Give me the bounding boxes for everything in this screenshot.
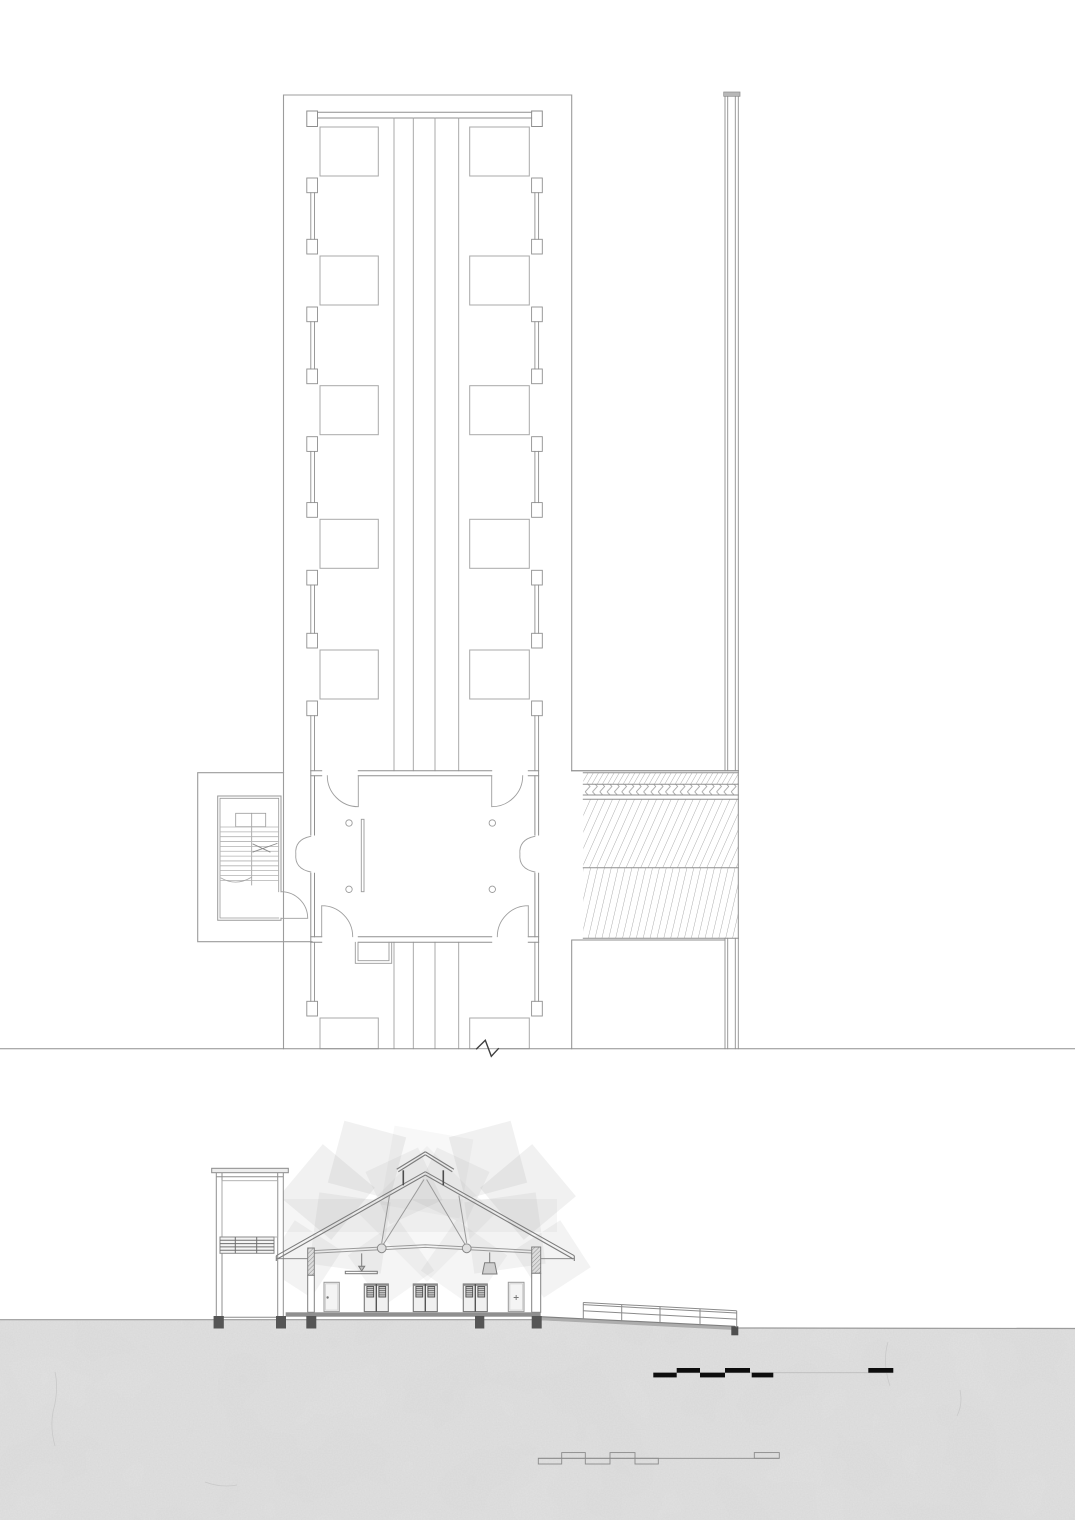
footing-pad [214, 1316, 224, 1329]
scale-bar-segment [752, 1373, 774, 1378]
door-louver [428, 1287, 435, 1298]
footing-pad [306, 1316, 316, 1329]
stall-left [320, 386, 378, 435]
terrain [0, 1310, 1075, 1520]
wall-pilaster-left [307, 369, 318, 384]
architectural-sheet [0, 0, 1075, 1520]
wall-pilaster-right [532, 570, 543, 585]
roof-hatch-band [583, 799, 738, 867]
below-hatch-rect [572, 940, 725, 1049]
stair-cut-arc [221, 878, 251, 883]
left-wall-cut [308, 1248, 315, 1275]
end-hall [296, 771, 539, 964]
footing-pad [532, 1316, 542, 1329]
stall-right [470, 519, 530, 568]
hall-niche [355, 942, 391, 963]
stall-right [470, 256, 530, 305]
wall-pilaster-left [307, 239, 318, 254]
wall-pilaster-left [307, 178, 318, 193]
scale-bar-segment [868, 1368, 893, 1373]
double-door [463, 1284, 487, 1312]
stall-right [470, 386, 530, 435]
door-louver [416, 1287, 423, 1298]
stall-right [470, 1018, 530, 1049]
wall-pilaster-right [532, 701, 543, 716]
annex-door-arc [281, 892, 308, 919]
wall-pilaster-left [307, 307, 318, 322]
scale-bar-segment [677, 1368, 700, 1373]
roof-hatch-band [583, 773, 738, 785]
right-wall-lower [532, 1273, 541, 1312]
door-louver [379, 1287, 386, 1298]
wall-pilaster-right [532, 1001, 543, 1016]
stair-annex [218, 796, 308, 920]
section-break-line [0, 1040, 1075, 1056]
door-knob [326, 1296, 328, 1298]
stair-direction-arrow [253, 844, 277, 853]
single-door [508, 1282, 524, 1311]
ventilation-tower [212, 1168, 289, 1328]
scale-bar-segment [653, 1373, 676, 1378]
footing-pad [276, 1316, 286, 1329]
roof-hatch-area [572, 771, 739, 1049]
tower-cap [212, 1168, 289, 1172]
truss-gusset-right [462, 1244, 471, 1253]
stair-treads [220, 827, 279, 880]
plan-top-beam [307, 111, 543, 127]
wall-pilaster-right [532, 369, 543, 384]
single-door [324, 1282, 339, 1311]
stall-left [320, 650, 378, 699]
scale-bar-segment [700, 1373, 725, 1378]
tower-louvers [220, 1237, 274, 1253]
wall-pilaster-right [532, 437, 543, 452]
door-louver [466, 1287, 473, 1298]
door-louver [478, 1287, 485, 1298]
wall-pilaster-left [307, 570, 318, 585]
right-wall-cut [532, 1247, 541, 1273]
corridor-lines [394, 118, 459, 1049]
stall-left [320, 256, 378, 305]
stall-left [320, 127, 378, 176]
wall-pilaster-right [532, 633, 543, 648]
left-wall-lower [308, 1275, 315, 1312]
fence-cap [724, 92, 740, 96]
wall-pilasters [307, 178, 543, 1016]
door-louver [367, 1287, 374, 1298]
stall-left [320, 519, 378, 568]
door-leaf [324, 1282, 339, 1311]
roof-hatch-band [583, 868, 738, 939]
wall-pilaster-left [307, 437, 318, 452]
wall-pilaster-left [307, 503, 318, 518]
door-row [324, 1282, 524, 1311]
corner-column-right [532, 111, 543, 127]
hatch-bands [572, 771, 739, 939]
stall-right [470, 127, 530, 176]
roof-hatch-band [583, 784, 738, 795]
drawing-canvas [0, 0, 1075, 1520]
double-door [364, 1284, 388, 1312]
wall-pilaster-left [307, 633, 318, 648]
wall-pilaster-right [532, 503, 543, 518]
hall-screen-wall [361, 819, 364, 891]
scale-bar-segment [725, 1368, 750, 1373]
cross-section [0, 1121, 1075, 1520]
stall-right [470, 650, 530, 699]
ramp-end-lip [731, 1326, 738, 1335]
corner-column-left [307, 111, 318, 127]
watermark-band [263, 1199, 557, 1232]
stall-left [320, 1018, 378, 1049]
footing-pad [475, 1316, 484, 1329]
hall-door-arcs [296, 776, 535, 937]
stair-landing [236, 813, 266, 826]
stall-grid [320, 127, 529, 1049]
floor-slab [286, 1312, 541, 1316]
wall-pilaster-left [307, 701, 318, 716]
truss-gusset-left [377, 1244, 386, 1253]
double-door [413, 1284, 437, 1312]
wall-pilaster-right [532, 239, 543, 254]
wall-pilaster-right [532, 178, 543, 193]
wall-pilaster-left [307, 1001, 318, 1016]
roof-plan [0, 92, 1075, 1056]
wall-pilaster-right [532, 307, 543, 322]
hall-columns [346, 820, 496, 893]
